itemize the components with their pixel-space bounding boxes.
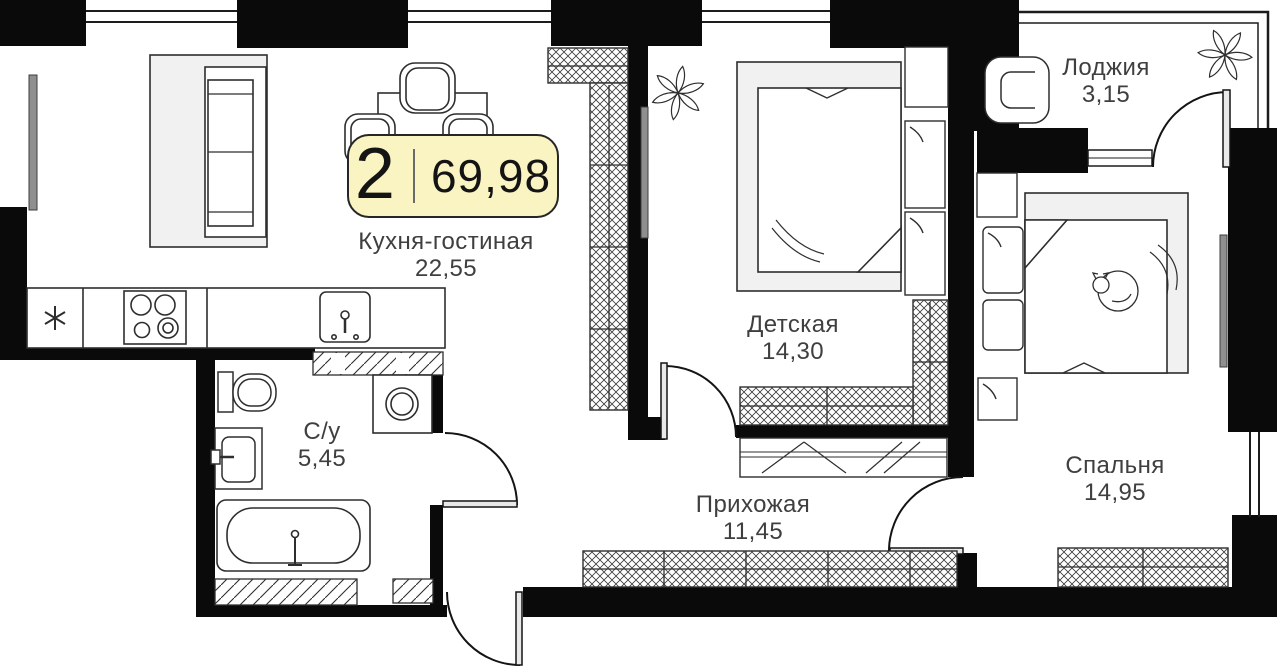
loggia-window-sill — [1088, 150, 1152, 166]
children-shelves — [905, 47, 948, 295]
total-area: 69,98 — [431, 149, 551, 203]
children-wardrobe-column — [913, 300, 948, 425]
floorplan: 2 69,98 Кухня-гостиная 22,55 Детская 14,… — [0, 0, 1277, 671]
kitchen-sink — [320, 292, 370, 342]
washing-machine — [373, 375, 432, 433]
children-wardrobe-row — [740, 387, 913, 425]
hallway-closet — [740, 438, 947, 477]
sofa — [150, 55, 267, 247]
hallway-wardrobe-row — [583, 551, 957, 587]
bathtub — [217, 500, 370, 571]
plant-icon — [1189, 19, 1260, 91]
floorplan-drawing — [0, 0, 1277, 671]
shaft-hatch-right — [393, 579, 433, 603]
summary-badge: 2 69,98 — [347, 134, 559, 218]
bathroom-sink — [211, 428, 262, 489]
kitchen-wardrobe-column — [548, 48, 628, 410]
toilet — [218, 372, 276, 412]
loggia-armchair — [985, 57, 1049, 123]
shaft-hatch-left — [215, 579, 357, 605]
bedroom-pillows — [983, 227, 1023, 350]
bedroom-wardrobe-row — [1058, 548, 1228, 587]
kitchen-counter — [27, 288, 445, 348]
children-bed — [737, 62, 901, 291]
bedroom-nightstands — [977, 173, 1017, 420]
plant-icon — [651, 66, 704, 120]
vent-shaft-band — [313, 352, 443, 375]
rooms-count: 2 — [355, 138, 395, 210]
badge-divider — [413, 149, 415, 203]
stove — [124, 291, 186, 344]
